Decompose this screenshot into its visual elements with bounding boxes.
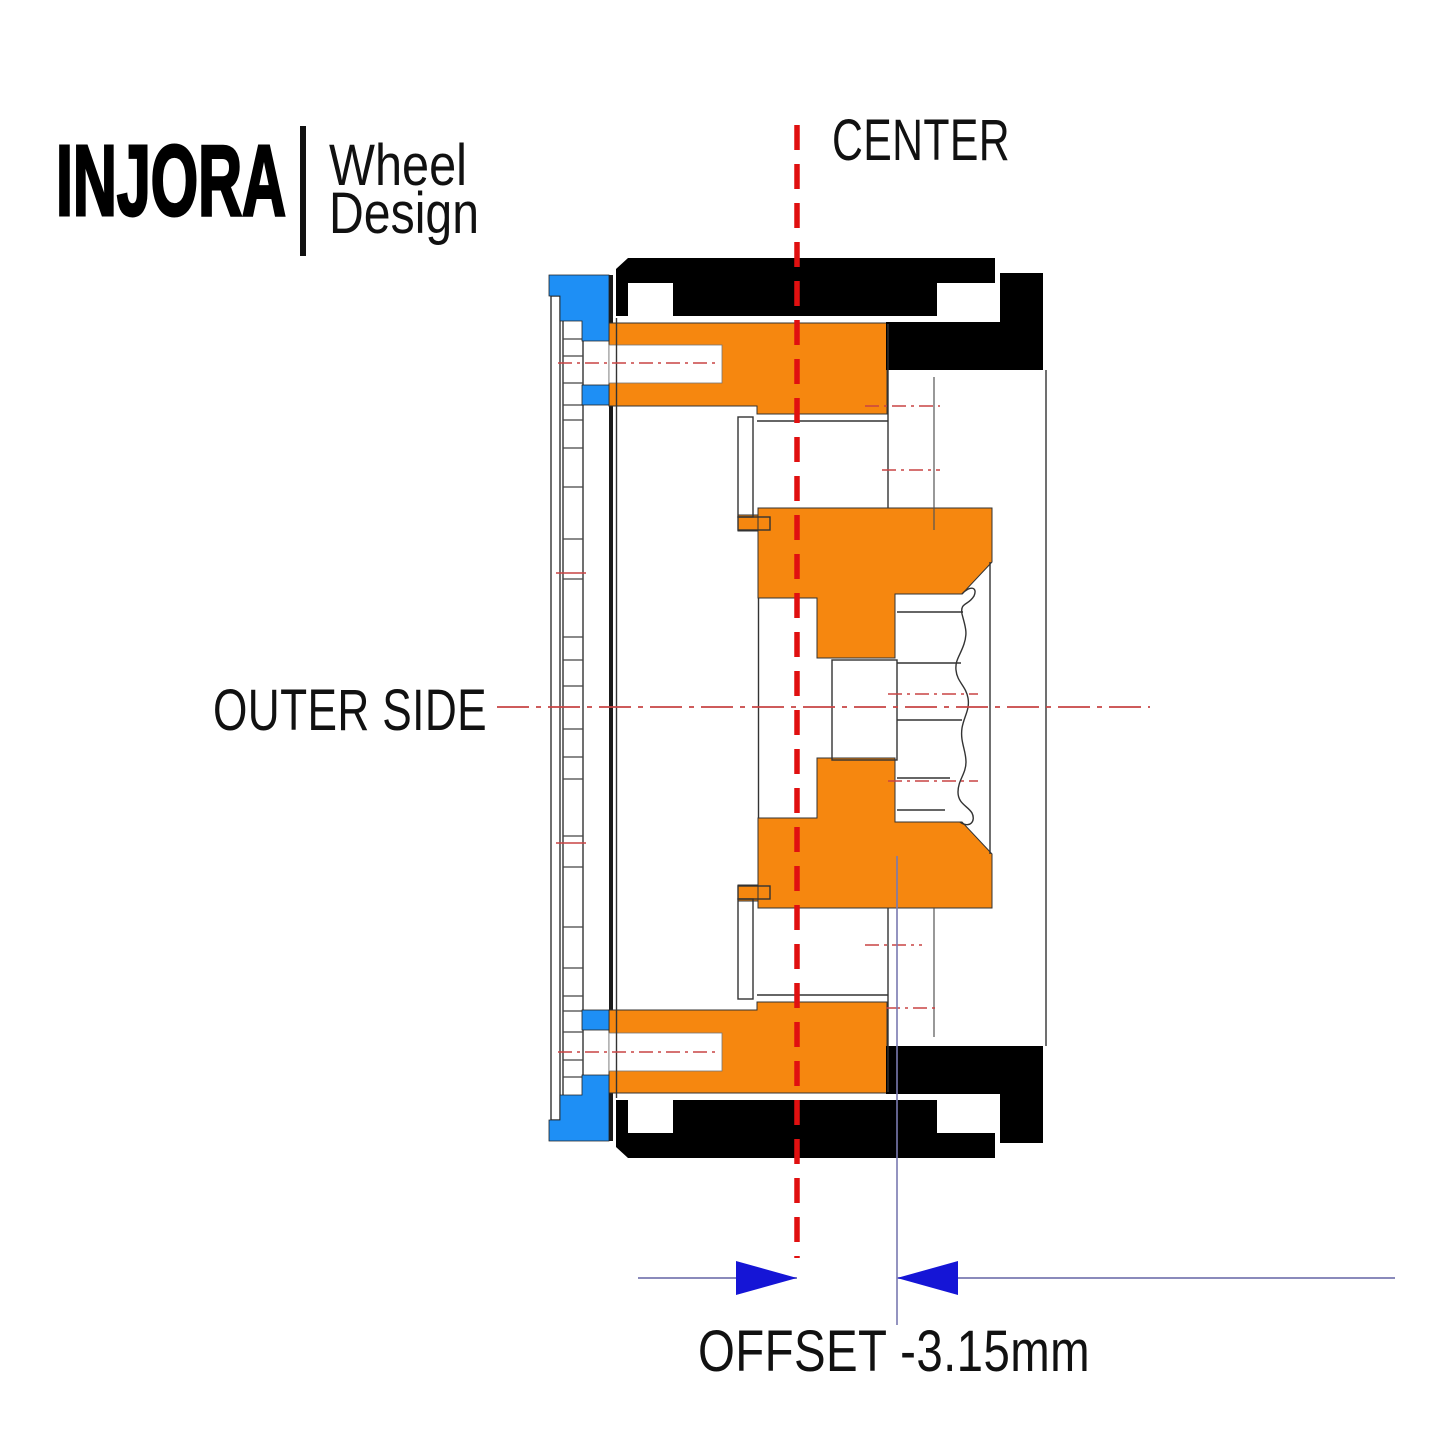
beadlock-bottom-small xyxy=(582,1010,609,1030)
outer-side-label: OUTER SIDE xyxy=(213,678,487,743)
center-label: CENTER xyxy=(832,108,1010,173)
rim-lip-outer xyxy=(551,296,560,1120)
beadlock-top-small xyxy=(582,385,609,405)
boss-column-bottom xyxy=(738,899,753,999)
logo: INJORA Wheel Design xyxy=(56,125,479,256)
tire-bead-bottom-bar xyxy=(616,1100,995,1158)
offset-value-label: OFFSET -3.15mm xyxy=(698,1319,1090,1384)
boss-column-top xyxy=(738,417,753,517)
tire-bead-top-bar xyxy=(616,258,995,316)
diagram-canvas: CENTER OUTER SIDE OFFSET -3.15mm INJORA … xyxy=(0,0,1445,1445)
dimension-arrow-left xyxy=(736,1261,797,1295)
labels: CENTER OUTER SIDE OFFSET -3.15mm xyxy=(213,108,1090,1384)
logo-subtitle-line2: Design xyxy=(329,181,479,246)
construction-lines xyxy=(617,318,1047,1098)
logo-divider xyxy=(300,126,306,256)
hub-upper xyxy=(758,508,992,658)
hub-lower xyxy=(758,758,992,908)
brand-logo-text: INJORA xyxy=(56,125,286,237)
rim-lip-inner xyxy=(563,296,583,1140)
wheel-arm-top-bore xyxy=(609,345,722,383)
hex-pocket xyxy=(832,660,897,760)
wheel-design-diagram: CENTER OUTER SIDE OFFSET -3.15mm INJORA … xyxy=(0,0,1445,1445)
dimension-arrow-right xyxy=(897,1261,958,1295)
